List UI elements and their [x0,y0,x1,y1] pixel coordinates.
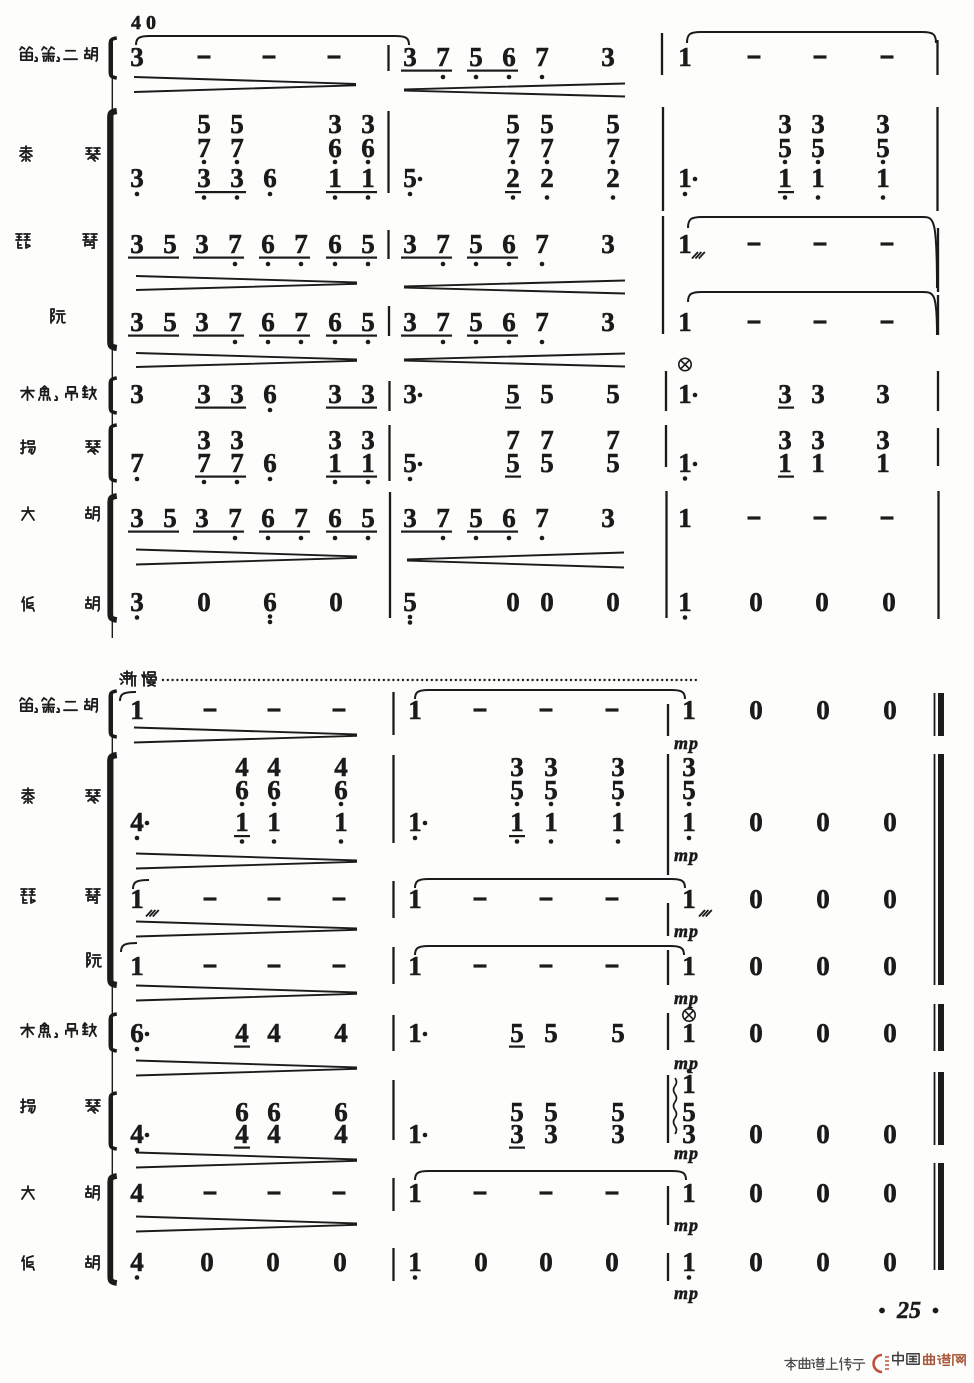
svg-text:3: 3 [328,379,342,409]
svg-text:4: 4 [130,807,144,837]
svg-text:5: 5 [811,133,825,163]
svg-text:7: 7 [436,42,450,72]
svg-text:7: 7 [197,133,211,163]
svg-text:0: 0 [266,1247,280,1277]
svg-text:7: 7 [506,133,520,163]
svg-text:4: 4 [267,1018,281,1048]
svg-text:1: 1 [682,807,696,837]
svg-text:3: 3 [403,379,417,409]
svg-text:3: 3 [130,587,144,617]
svg-text:5: 5 [403,587,417,617]
svg-text:0: 0 [749,587,763,617]
svg-text:5: 5 [540,448,554,478]
svg-text:5: 5 [876,133,890,163]
svg-text:1: 1 [408,807,422,837]
svg-text:7: 7 [535,42,549,72]
svg-text:0: 0 [749,807,763,837]
svg-text:3: 3 [195,229,209,259]
svg-text:1: 1 [361,163,375,193]
svg-text:6: 6 [267,775,281,805]
svg-text:7: 7 [535,229,549,259]
svg-text:0: 0 [816,1247,830,1277]
svg-text:1: 1 [408,1119,422,1149]
svg-text:1: 1 [328,163,342,193]
svg-text:mp: mp [674,733,699,753]
svg-text:2: 2 [506,163,520,193]
svg-text:5: 5 [469,307,483,337]
svg-text:3: 3 [403,503,417,533]
svg-text:3: 3 [544,1119,558,1149]
svg-text:1: 1 [682,1247,696,1277]
svg-text:mp: mp [674,1283,699,1303]
svg-text:1: 1 [408,1178,422,1208]
svg-text:1: 1 [678,587,692,617]
svg-text:3: 3 [130,503,144,533]
svg-text:4: 4 [334,1018,348,1048]
svg-text:7: 7 [294,503,308,533]
svg-text:3: 3 [601,42,615,72]
svg-text:3: 3 [601,503,615,533]
svg-text:5: 5 [506,379,520,409]
svg-text:5: 5 [544,1018,558,1048]
svg-text:4: 4 [267,1119,281,1149]
svg-text:4: 4 [235,1018,249,1048]
svg-text:4: 4 [130,1178,144,1208]
svg-text:1: 1 [682,1178,696,1208]
svg-text:3: 3 [403,307,417,337]
svg-text:1: 1 [544,807,558,837]
svg-text:6: 6 [328,133,342,163]
svg-text:5: 5 [361,503,375,533]
svg-text:6: 6 [263,379,277,409]
svg-text:0: 0 [883,807,897,837]
svg-text:3: 3 [130,379,144,409]
svg-text:3: 3 [197,379,211,409]
svg-text:0: 0 [816,1119,830,1149]
svg-text:7: 7 [540,133,554,163]
svg-text:3: 3 [601,229,615,259]
svg-text:3: 3 [130,307,144,337]
svg-text:0: 0 [540,587,554,617]
svg-text:0: 0 [749,1119,763,1149]
svg-text:1: 1 [682,1069,696,1099]
svg-text:3: 3 [130,163,144,193]
svg-text:3: 3 [601,307,615,337]
svg-text:6: 6 [502,229,516,259]
svg-text:3: 3 [611,1119,625,1149]
svg-text:5: 5 [540,379,554,409]
svg-text:0: 0 [883,951,897,981]
svg-text:0: 0 [815,587,829,617]
svg-text:0: 0 [329,587,343,617]
svg-text:5: 5 [506,448,520,478]
svg-text:7: 7 [535,503,549,533]
svg-text:1: 1 [682,1018,696,1048]
svg-text:mp: mp [674,1143,699,1163]
svg-text:6: 6 [502,42,516,72]
svg-text:6: 6 [130,1018,144,1048]
svg-text:6: 6 [361,133,375,163]
svg-text:3: 3 [197,163,211,193]
svg-text:4: 4 [235,1119,249,1149]
svg-text:5: 5 [163,229,177,259]
svg-text:1: 1 [811,163,825,193]
svg-text:0: 0 [882,587,896,617]
svg-text:0: 0 [749,884,763,914]
svg-text:0: 0 [816,951,830,981]
svg-text:3: 3 [778,379,792,409]
svg-text:5: 5 [611,1018,625,1048]
svg-text:0: 0 [816,884,830,914]
svg-text:7: 7 [436,503,450,533]
svg-text:0: 0 [883,1178,897,1208]
svg-text:7: 7 [228,307,242,337]
svg-text:6: 6 [502,503,516,533]
svg-text:5: 5 [682,775,696,805]
svg-text:1: 1 [682,695,696,725]
svg-text:0: 0 [749,1018,763,1048]
svg-text:5: 5 [606,448,620,478]
svg-text:3: 3 [811,379,825,409]
svg-text:3: 3 [195,307,209,337]
svg-text:3: 3 [403,42,417,72]
svg-text:1: 1 [408,1018,422,1048]
svg-text:5: 5 [403,448,417,478]
svg-text:5: 5 [469,229,483,259]
svg-text:0: 0 [606,587,620,617]
svg-text:6: 6 [263,448,277,478]
svg-text:mp: mp [674,1215,699,1235]
svg-text:7: 7 [197,448,211,478]
svg-text:1: 1 [678,229,692,259]
svg-text:3: 3 [876,379,890,409]
svg-text:5: 5 [361,229,375,259]
svg-text:7: 7 [606,133,620,163]
svg-text:5: 5 [611,775,625,805]
svg-text:3: 3 [130,42,144,72]
svg-text:7: 7 [535,307,549,337]
svg-text:1: 1 [876,448,890,478]
svg-text:5: 5 [469,503,483,533]
svg-text:mp: mp [674,988,699,1008]
svg-text:5: 5 [606,379,620,409]
svg-text:0: 0 [749,1178,763,1208]
svg-text:1: 1 [682,951,696,981]
svg-text:5: 5 [163,307,177,337]
svg-text:2: 2 [606,163,620,193]
svg-text:1: 1 [678,42,692,72]
svg-text:6: 6 [502,307,516,337]
svg-text:1: 1 [678,163,692,193]
svg-text:3: 3 [230,163,244,193]
svg-text:0: 0 [749,951,763,981]
svg-text:0: 0 [333,1247,347,1277]
svg-text:7: 7 [230,133,244,163]
svg-text:4: 4 [130,1247,144,1277]
svg-text:5: 5 [544,775,558,805]
svg-text:1: 1 [811,448,825,478]
svg-text:1: 1 [682,884,696,914]
svg-text:40: 40 [131,12,161,34]
svg-text:mp: mp [674,845,699,865]
svg-text:0: 0 [883,1018,897,1048]
svg-text:3: 3 [361,379,375,409]
svg-text:4: 4 [130,1119,144,1149]
svg-text:1: 1 [876,163,890,193]
svg-text:0: 0 [883,1119,897,1149]
svg-text:1: 1 [361,448,375,478]
svg-text:5: 5 [469,42,483,72]
svg-text:1: 1 [408,951,422,981]
svg-text:1: 1 [678,448,692,478]
svg-text:6: 6 [263,587,277,617]
svg-text:1: 1 [678,503,692,533]
svg-text:1: 1 [778,163,792,193]
svg-text:25: 25 [896,1298,921,1324]
svg-text:7: 7 [228,229,242,259]
svg-text:5: 5 [510,775,524,805]
svg-text:3: 3 [195,503,209,533]
svg-text:1: 1 [130,884,144,914]
svg-text:6: 6 [328,503,342,533]
svg-text:6: 6 [334,775,348,805]
svg-text:0: 0 [749,1247,763,1277]
svg-text:3: 3 [130,229,144,259]
svg-text:5: 5 [403,163,417,193]
svg-text:2: 2 [540,163,554,193]
svg-text:6: 6 [328,307,342,337]
svg-text:4: 4 [334,1119,348,1149]
svg-text:6: 6 [263,163,277,193]
svg-text:1: 1 [267,807,281,837]
svg-text:6: 6 [261,307,275,337]
svg-text:6: 6 [261,503,275,533]
svg-text:0: 0 [474,1247,488,1277]
svg-text:0: 0 [816,1178,830,1208]
svg-text:1: 1 [678,379,692,409]
svg-text:0: 0 [506,587,520,617]
svg-text:3: 3 [403,229,417,259]
svg-text:3: 3 [230,379,244,409]
svg-text:6: 6 [261,229,275,259]
svg-text:mp: mp [674,921,699,941]
svg-text:1: 1 [611,807,625,837]
svg-text:5: 5 [163,503,177,533]
svg-text:0: 0 [883,884,897,914]
svg-text:7: 7 [294,229,308,259]
svg-text:0: 0 [816,695,830,725]
svg-text:1: 1 [510,807,524,837]
svg-text:1: 1 [130,695,144,725]
svg-text:0: 0 [883,695,897,725]
svg-text:0: 0 [816,807,830,837]
svg-text:5: 5 [778,133,792,163]
svg-text:7: 7 [130,448,144,478]
svg-text:0: 0 [197,587,211,617]
svg-text:1: 1 [408,884,422,914]
svg-text:1: 1 [408,1247,422,1277]
svg-text:5: 5 [361,307,375,337]
svg-text:0: 0 [200,1247,214,1277]
svg-text:1: 1 [778,448,792,478]
svg-text:1: 1 [678,307,692,337]
svg-text:1: 1 [408,695,422,725]
svg-text:1: 1 [334,807,348,837]
svg-text:7: 7 [436,229,450,259]
svg-text:1: 1 [130,951,144,981]
svg-text:7: 7 [294,307,308,337]
svg-text:6: 6 [235,775,249,805]
svg-text:0: 0 [605,1247,619,1277]
svg-text:3: 3 [510,1119,524,1149]
svg-text:0: 0 [749,695,763,725]
svg-text:0: 0 [883,1247,897,1277]
svg-text:1: 1 [328,448,342,478]
svg-text:6: 6 [328,229,342,259]
svg-text:5: 5 [510,1018,524,1048]
svg-text:7: 7 [436,307,450,337]
svg-text:0: 0 [539,1247,553,1277]
svg-text:7: 7 [228,503,242,533]
svg-text:0: 0 [816,1018,830,1048]
svg-text:1: 1 [235,807,249,837]
svg-text:7: 7 [230,448,244,478]
